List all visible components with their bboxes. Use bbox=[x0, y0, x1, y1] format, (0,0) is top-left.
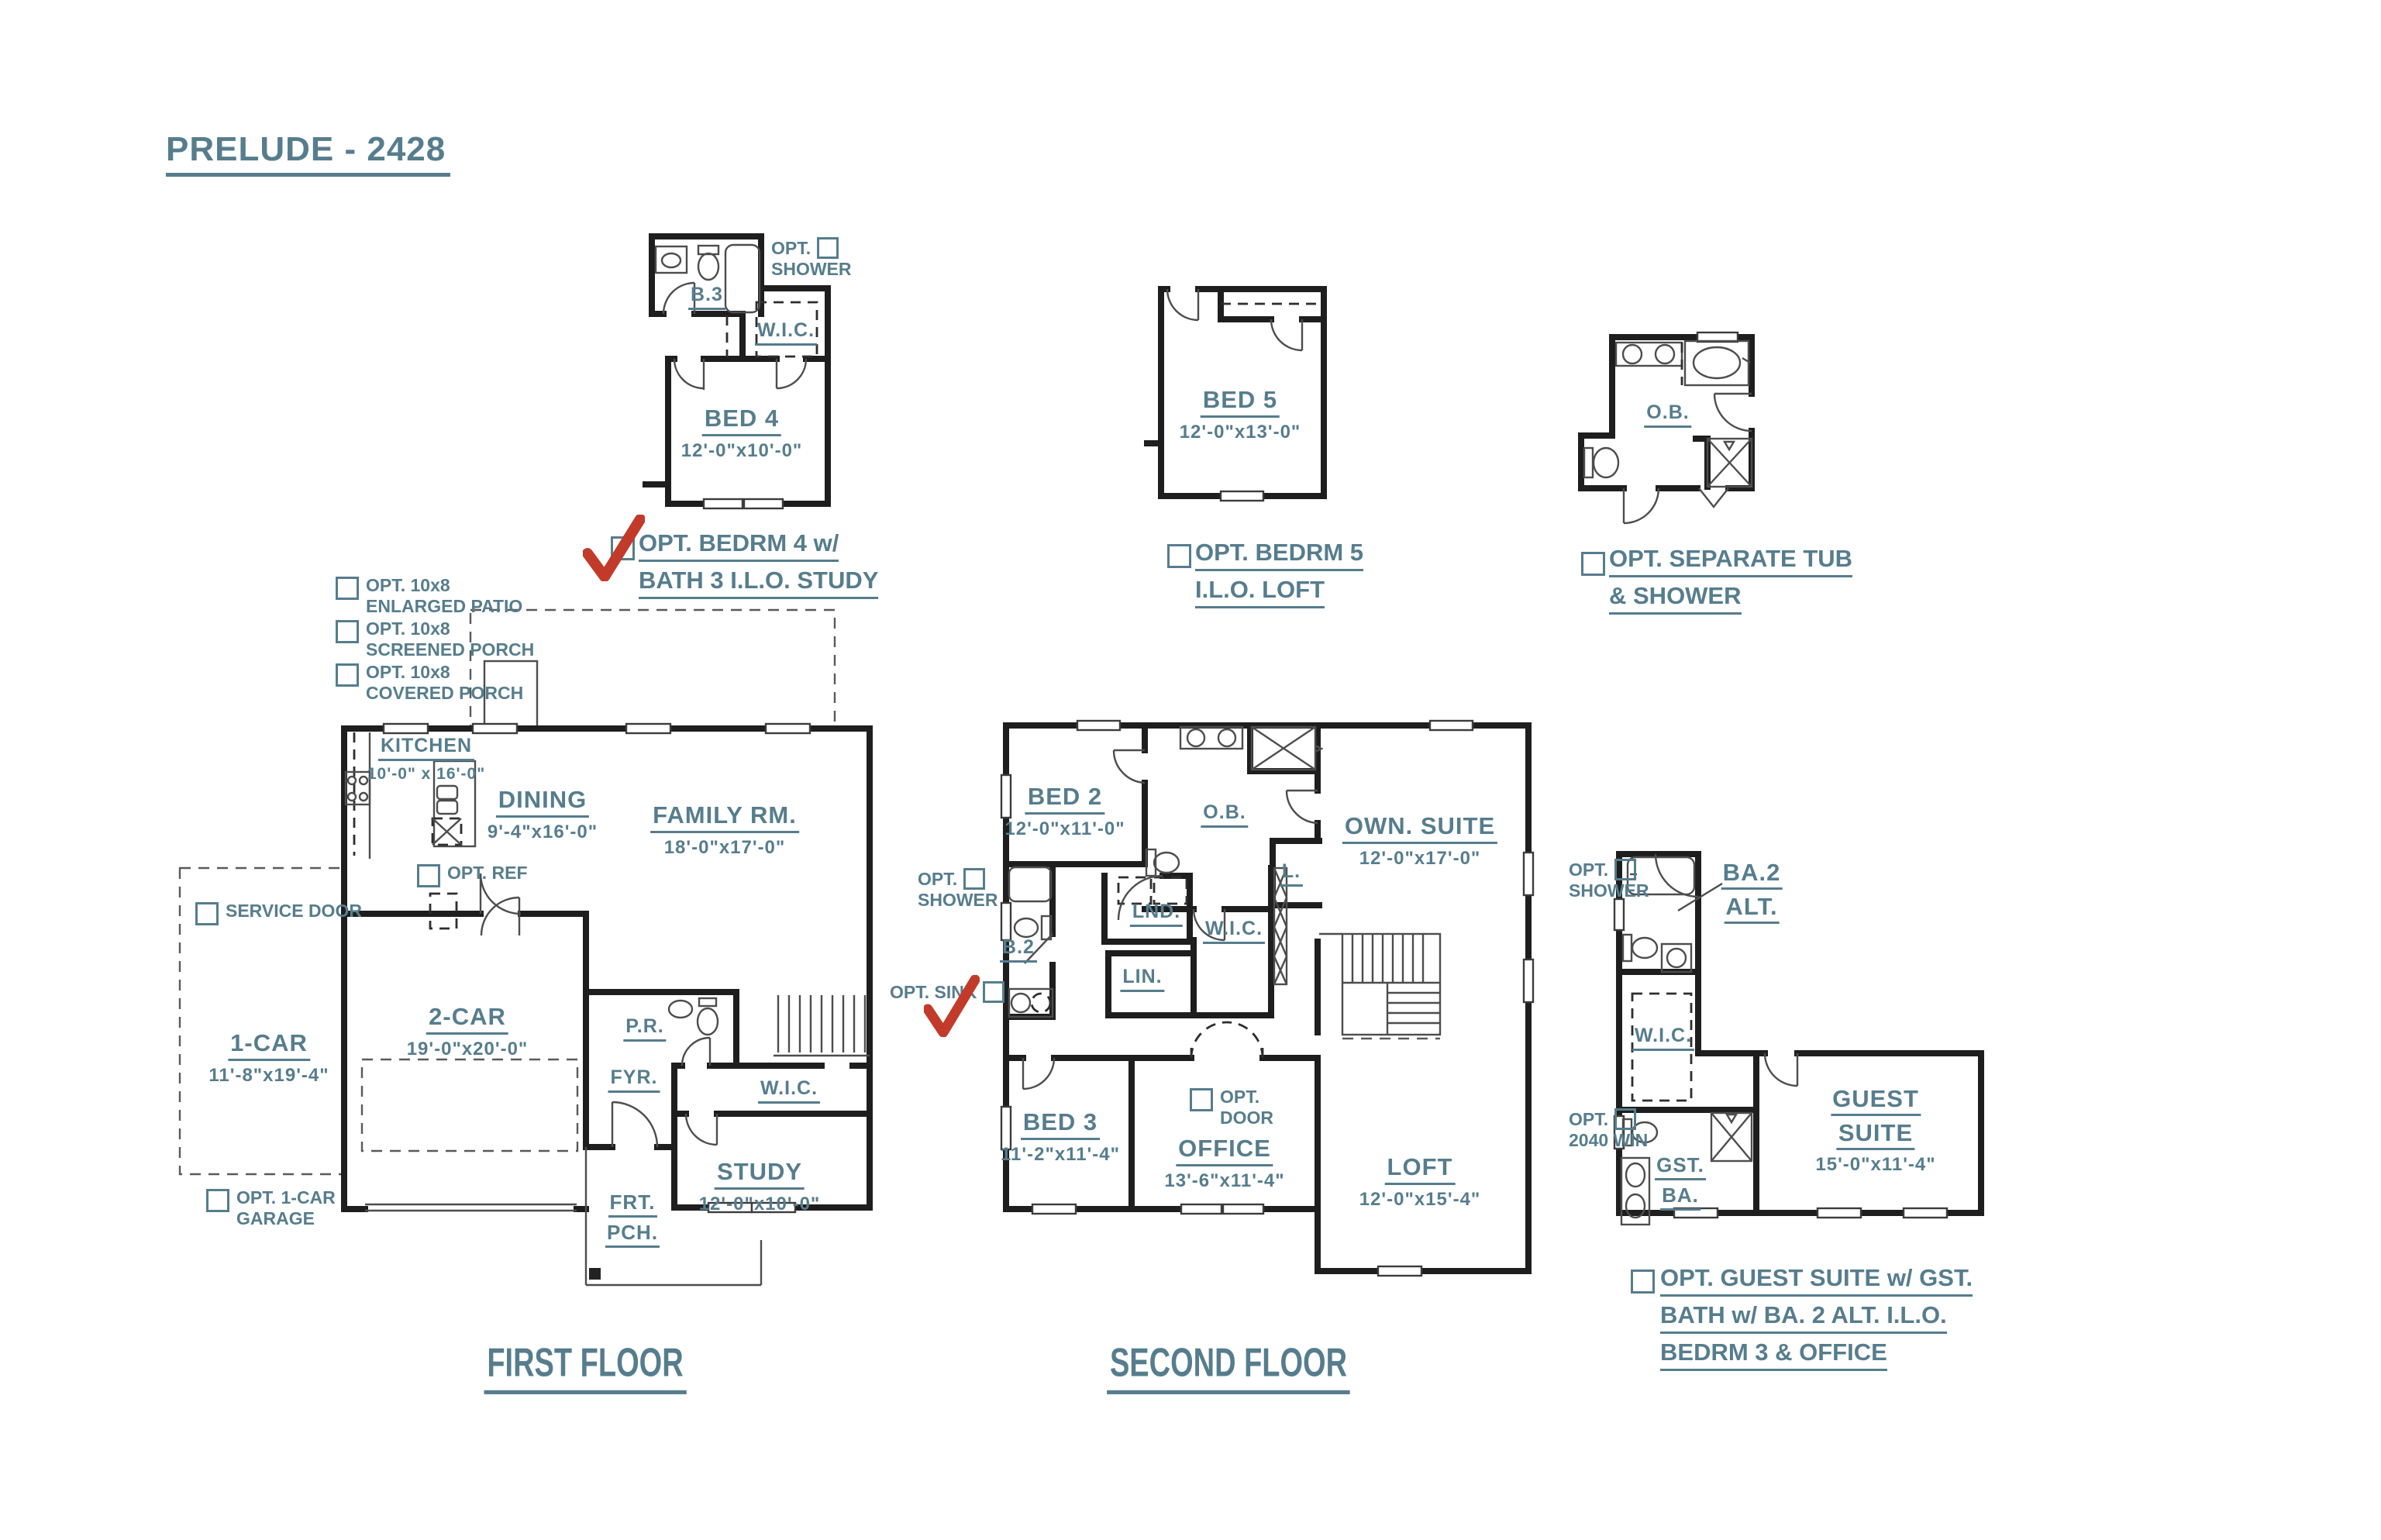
opt-enlarged-patio: OPT. 10x8ENLARGED PATIO bbox=[336, 575, 522, 617]
room-label-bed5: BED 512'-0"x13'-0" bbox=[1180, 386, 1301, 443]
opt-2040-win: OPT. 2040 WIN bbox=[1569, 1108, 1648, 1151]
opt-covered-porch: OPT. 10x8COVERED PORCH bbox=[336, 662, 523, 704]
room-label-kitchen: KITCHEN10'-0" x 16'-0" bbox=[367, 735, 485, 784]
room-label-ob-opt: O.B. bbox=[1644, 401, 1691, 428]
service-door-checkbox[interactable] bbox=[195, 902, 219, 925]
room-label-one-car: 1-CAR11'-8"x19'-4" bbox=[208, 1029, 329, 1087]
plan-title: PRELUDE - 2428 bbox=[166, 130, 450, 177]
opt-ref: OPT. REF bbox=[417, 863, 528, 887]
opt-shower-checkbox[interactable] bbox=[817, 237, 839, 259]
room-label-linen-l: L. bbox=[1280, 860, 1303, 887]
opt-shower-second-checkbox[interactable] bbox=[963, 868, 985, 890]
opt-ref-checkbox[interactable] bbox=[417, 864, 440, 887]
opt-2040-win-checkbox[interactable] bbox=[1614, 1108, 1636, 1130]
red-checkmark bbox=[924, 975, 980, 1037]
opt-guest-suite-caption: OPT. GUEST SUITE w/ GST. BATH w/ BA. 2 A… bbox=[1660, 1263, 1973, 1375]
opt-screened-porch-checkbox[interactable] bbox=[336, 620, 359, 643]
room-label-bed4: BED 412'-0"x10'-0" bbox=[681, 405, 803, 462]
room-label-two-car: 2-CAR19'-0"x20'-0" bbox=[407, 1003, 529, 1060]
opt-tub-shower-drawing bbox=[1581, 332, 1752, 523]
room-label-wic-second: W.I.C. bbox=[1203, 918, 1265, 944]
opt-enlarged-patio-checkbox[interactable] bbox=[336, 577, 359, 600]
room-label-fyr: FYR. bbox=[608, 1066, 660, 1093]
option-label: SHOWER bbox=[771, 259, 852, 280]
room-label-own-suite: OWN. SUITE12'-0"x17'-0" bbox=[1342, 812, 1497, 870]
room-label-laundry: LND. bbox=[1130, 901, 1183, 927]
opt-door: OPT.DOOR bbox=[1190, 1087, 1273, 1128]
room-label-front-porch: FRT.PCH. bbox=[605, 1190, 660, 1251]
room-label-wic-bed4: W.I.C. bbox=[755, 319, 817, 346]
plan-linework bbox=[0, 0, 2381, 1540]
room-label-pr: P.R. bbox=[623, 1015, 666, 1042]
first-floor-label: FIRST FLOOR bbox=[484, 1341, 687, 1394]
option-label: OPT. bbox=[771, 238, 811, 259]
opt-tub-shower-caption: OPT. SEPARATE TUB & SHOWER bbox=[1609, 544, 1852, 618]
room-label-b2: B.2 bbox=[1000, 936, 1037, 963]
opt-bedrm5-caption: OPT. BEDRM 5 I.L.O. LOFT bbox=[1195, 538, 1363, 612]
opt-tub-shower-checkbox[interactable] bbox=[1581, 552, 1605, 576]
room-label-bed3: BED 311'-2"x11'-4" bbox=[1001, 1108, 1120, 1166]
room-label-wic-first: W.I.C. bbox=[758, 1077, 820, 1104]
opt-shower-guest: OPT. SHOWER bbox=[1569, 859, 1649, 901]
opt-covered-porch-checkbox[interactable] bbox=[336, 663, 359, 687]
opt-shower-option-bed4: OPT. SHOWER bbox=[771, 237, 852, 280]
second-floor-label: SECOND FLOOR bbox=[1107, 1341, 1350, 1394]
opt-screened-porch: OPT. 10x8SCREENED PORCH bbox=[336, 618, 534, 660]
room-label-family: FAMILY RM.18'-0"x17'-0" bbox=[650, 801, 799, 859]
room-label-bath3: B.3 bbox=[688, 284, 725, 310]
red-checkmark bbox=[583, 515, 645, 581]
opt-bedrm5-checkbox[interactable] bbox=[1167, 544, 1191, 568]
opt-one-car-garage-checkbox[interactable] bbox=[206, 1189, 229, 1212]
opt-bedrm4-caption: OPT. BEDRM 4 w/ BATH 3 I.L.O. STUDY bbox=[639, 529, 878, 603]
room-label-office: OFFICE13'-6"x11'-4" bbox=[1164, 1135, 1284, 1192]
room-label-dining: DINING9'-4"x16'-0" bbox=[488, 786, 598, 843]
room-label-study: STUDY12'-0"x10'-0" bbox=[699, 1158, 821, 1215]
room-label-guest-suite: GUESTSUITE 15'-0"x11'-4" bbox=[1815, 1085, 1935, 1176]
opt-guest-suite-checkbox[interactable] bbox=[1631, 1270, 1655, 1294]
floor-plan-sheet: PRELUDE - 2428 OPT. SHOWER B.3 W.I.C. BE… bbox=[0, 0, 2381, 1540]
room-label-wic-guest: W.I.C. bbox=[1632, 1025, 1694, 1051]
opt-one-car-garage: OPT. 1-CARGARAGE bbox=[206, 1187, 336, 1229]
room-label-bed2: BED 212'-0"x11'-0" bbox=[1004, 783, 1125, 840]
room-label-ba2-alt: BA.2ALT. bbox=[1721, 859, 1783, 927]
room-label-lin: LIN. bbox=[1120, 966, 1164, 992]
opt-service-door: SERVICE DOOR bbox=[195, 901, 362, 925]
opt-shower-guest-checkbox[interactable] bbox=[1614, 859, 1636, 880]
room-label-gst-ba: GST.BA. bbox=[1655, 1153, 1706, 1214]
room-label-loft: LOFT12'-0"x15'-4" bbox=[1359, 1153, 1481, 1211]
opt-sink-checkbox[interactable] bbox=[983, 981, 1004, 1003]
opt-shower-second: OPT. SHOWER bbox=[918, 868, 998, 911]
room-label-ob: O.B. bbox=[1201, 801, 1248, 828]
opt-door-checkbox[interactable] bbox=[1190, 1088, 1213, 1111]
